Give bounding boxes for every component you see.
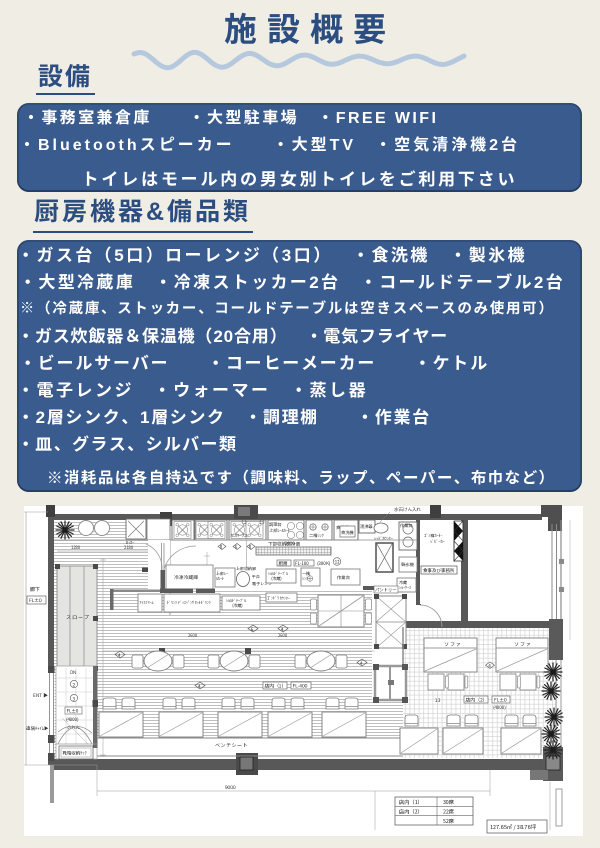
svg-text:2600: 2600 bbox=[188, 633, 198, 639]
svg-text:(冷蔵): (冷蔵) bbox=[232, 603, 243, 609]
svg-text:食事及び事務所: 食事及び事務所 bbox=[422, 567, 455, 574]
svg-text:ｺﾞﾝﾄﾞﾗ ｶｳﾝﾀｰ: ｺﾞﾝﾄﾞﾗ ｶｳﾝﾀｰ bbox=[267, 596, 290, 602]
svg-text:店内（2）: 店内（2） bbox=[465, 697, 488, 704]
svg-text:3600: 3600 bbox=[284, 541, 295, 547]
svg-text:(冷蔵): (冷蔵) bbox=[271, 576, 282, 582]
svg-text:スロープ: スロープ bbox=[66, 614, 90, 621]
svg-text:食洗機: 食洗機 bbox=[341, 530, 354, 536]
svg-text:30席: 30席 bbox=[442, 799, 454, 806]
svg-text:13: 13 bbox=[435, 697, 440, 704]
svg-text:ベンチシート: ベンチシート bbox=[215, 742, 248, 749]
svg-text:3: 3 bbox=[71, 695, 75, 702]
svg-text:湯沸器: 湯沸器 bbox=[360, 524, 373, 530]
svg-text:DN: DN bbox=[70, 670, 76, 676]
svg-text:2: 2 bbox=[72, 681, 75, 688]
svg-text:52席: 52席 bbox=[443, 818, 454, 825]
svg-text:上部ﾚｰﾙｶｰﾄ: 上部ﾚｰﾙｶｰﾄ bbox=[269, 528, 290, 534]
svg-text:ﾙｶｰﾄ: ﾙｶｰﾄ bbox=[215, 576, 224, 582]
svg-text:水石けん入れ: 水石けん入れ bbox=[393, 506, 421, 513]
svg-text:1280: 1280 bbox=[71, 545, 81, 551]
svg-text:ENT ▶: ENT ▶ bbox=[33, 692, 48, 699]
svg-text:2600: 2600 bbox=[278, 633, 288, 639]
svg-text:2180: 2180 bbox=[124, 545, 134, 551]
svg-text:ﾄﾞﾘﾝｸ ﾃﾞｨｽﾍﾟﾝｻ ﾎｯﾄﾄﾞﾘﾝｸ: ﾄﾞﾘﾝｸ ﾃﾞｨｽﾍﾟﾝｻ ﾎｯﾄﾄﾞﾘﾝｸ bbox=[167, 600, 211, 606]
svg-text:9000: 9000 bbox=[225, 784, 236, 791]
svg-text:上部収納扉: 上部収納扉 bbox=[235, 566, 256, 572]
svg-text:ｱｲｽｸﾘｰﾑ: ｱｲｽｸﾘｰﾑ bbox=[139, 600, 154, 606]
svg-text:冷凍冷蔵庫: 冷凍冷蔵庫 bbox=[174, 574, 198, 581]
svg-text:廊下: 廊下 bbox=[29, 586, 40, 593]
svg-text:ｶﾞｽﾃｰﾌﾞﾙ: ｶﾞｽﾃｰﾌﾞﾙ bbox=[230, 533, 249, 539]
svg-text:二槽ｼﾝｸ: 二槽ｼﾝｸ bbox=[309, 533, 324, 539]
svg-text:店内（1）: 店内（1） bbox=[398, 799, 423, 806]
svg-text:パントリー: パントリー bbox=[375, 588, 396, 594]
svg-text:ﾍﾞﾋﾞｰｶｰ: ﾍﾞﾋﾞｰｶｰ bbox=[430, 539, 445, 545]
svg-text:12: 12 bbox=[335, 560, 340, 566]
svg-text:店内（1）: 店内（1） bbox=[264, 683, 287, 690]
svg-text:FL±0: FL±0 bbox=[67, 709, 80, 715]
svg-text:127.65㎡ / 38.76坪: 127.65㎡ / 38.76坪 bbox=[490, 823, 537, 831]
svg-text:靴箱収納ﾗｯｸ: 靴箱収納ﾗｯｸ bbox=[63, 751, 87, 757]
svg-text:ソファ: ソファ bbox=[444, 641, 462, 648]
svg-text:遠隔ﾁｬｲﾑ▶: 遠隔ﾁｬｲﾑ▶ bbox=[25, 726, 49, 732]
svg-text:FL-400: FL-400 bbox=[293, 683, 308, 690]
svg-text:FL±0: FL±0 bbox=[494, 697, 507, 704]
svg-text:作業台: 作業台 bbox=[399, 523, 413, 529]
svg-text:FL±0: FL±0 bbox=[29, 597, 42, 604]
svg-text:FL-100: FL-100 bbox=[295, 561, 309, 567]
svg-text:(4000): (4000) bbox=[493, 704, 506, 711]
svg-text:製氷機: 製氷機 bbox=[401, 562, 415, 568]
svg-text:22席: 22席 bbox=[443, 809, 454, 816]
svg-text:ｼｮｰｹｰｽ: ｼｮｰｹｰｽ bbox=[399, 585, 411, 591]
svg-text:(300K): (300K) bbox=[317, 560, 330, 567]
svg-text:厨房: 厨房 bbox=[278, 561, 288, 567]
svg-text:作業台: 作業台 bbox=[336, 575, 351, 581]
svg-text:(4000): (4000) bbox=[66, 716, 79, 723]
svg-text:平台: 平台 bbox=[251, 574, 260, 580]
svg-text:ﾍｯﾄﾞｶｳﾝﾀｰ: ﾍｯﾄﾞｶｳﾝﾀｰ bbox=[374, 536, 393, 542]
svg-text:店内（2）: 店内（2） bbox=[398, 809, 423, 816]
svg-text:ソファ: ソファ bbox=[514, 641, 532, 648]
